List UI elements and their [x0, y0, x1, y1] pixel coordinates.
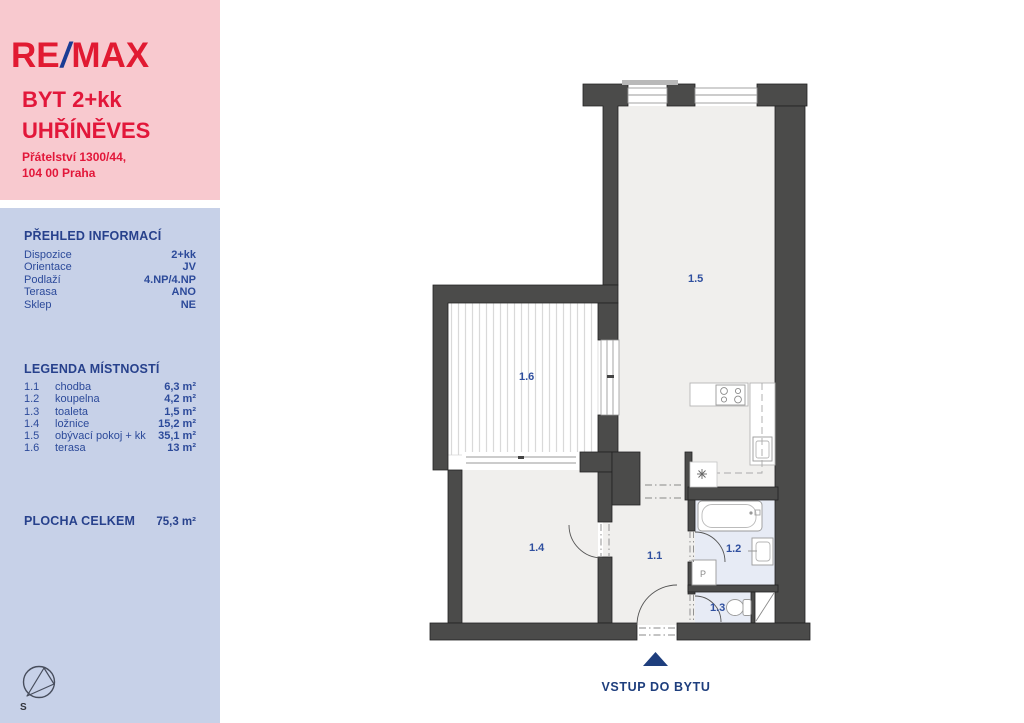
listing-address: Přátelství 1300/44, 104 00 Praha — [22, 149, 126, 181]
listing-title-line2: UHŘÍNĚVES — [22, 115, 150, 146]
info-value: 2+kk — [171, 249, 196, 261]
info-label: Terasa — [24, 286, 57, 298]
room-label-hall: 1.1 — [647, 550, 662, 562]
wall-bedroom-left — [448, 470, 462, 623]
room-name: koupelna — [55, 393, 164, 405]
wall-hall-right-1 — [688, 500, 695, 531]
room-area: 4,2 m² — [164, 393, 196, 405]
wall-terrace-pier — [598, 303, 618, 340]
room-name: ložnice — [55, 418, 158, 430]
wall-right — [775, 106, 805, 623]
info-value: NE — [181, 299, 196, 311]
window-sill-bar — [622, 80, 678, 85]
legend-rows: 1.1chodba6,3 m² 1.2koupelna4,2 m² 1.3toa… — [24, 381, 196, 455]
overview-row: TerasaANO — [24, 286, 196, 298]
total-label: PLOCHA CELKEM — [24, 514, 135, 528]
wall-bedroom-right-lower — [598, 557, 612, 623]
overview-heading: PŘEHLED INFORMACÍ — [24, 229, 161, 243]
wall-bedroom-right-upper — [598, 472, 612, 522]
wall-window-pier — [667, 84, 695, 106]
room-area: 35,1 m² — [158, 430, 196, 442]
overview-row: Dispozice2+kk — [24, 249, 196, 261]
room-name: toaleta — [55, 406, 164, 418]
entrance-label: VSTUP DO BYTU — [602, 680, 711, 694]
overview-row: Podlaží4.NP/4.NP — [24, 274, 196, 286]
wall-below-window — [598, 415, 618, 452]
room-label-living: 1.5 — [688, 273, 703, 285]
room-label-terrace: 1.6 — [519, 371, 534, 383]
window-top-right — [695, 88, 757, 103]
total-value: 75,3 m² — [156, 516, 196, 528]
boiler-nook — [690, 462, 717, 487]
address-line1: Přátelství 1300/44, — [22, 149, 126, 165]
room-area: 13 m² — [167, 442, 196, 454]
window-terrace-living — [601, 340, 619, 415]
legend-heading: LEGENDA MÍSTNOSTÍ — [24, 362, 160, 376]
total-area-row: PLOCHA CELKEM 75,3 m² — [24, 514, 196, 528]
listing-title-line1: BYT 2+kk — [22, 84, 150, 115]
floor-plan: P 1.5 1.6 1.4 1. — [410, 70, 830, 700]
info-label: Podlaží — [24, 274, 61, 286]
room-id: 1.2 — [24, 393, 55, 405]
legend-row: 1.6terasa13 m² — [24, 442, 196, 454]
listing-title: BYT 2+kk UHŘÍNĚVES — [22, 84, 150, 146]
room-area: 1,5 m² — [164, 406, 196, 418]
info-value: JV — [183, 261, 196, 273]
room-label-bathroom: 1.2 — [726, 543, 741, 555]
room-label-toilet: 1.3 — [710, 602, 725, 614]
info-value: ANO — [172, 286, 196, 298]
wall-toilet-shaft-divider — [751, 592, 755, 623]
address-line2: 104 00 Praha — [22, 165, 126, 181]
room-id: 1.3 — [24, 406, 55, 418]
wall-bathroom-top — [688, 487, 778, 500]
toilet — [727, 600, 744, 616]
legend-row: 1.1chodba6,3 m² — [24, 381, 196, 393]
overview-rows: Dispozice2+kk OrientaceJV Podlaží4.NP/4.… — [24, 249, 196, 311]
room-area: 6,3 m² — [164, 381, 196, 393]
room-id: 1.4 — [24, 418, 55, 430]
wall-bottom-left — [430, 623, 637, 640]
room-name: chodba — [55, 381, 164, 393]
legend-row: 1.3toaleta1,5 m² — [24, 406, 196, 418]
window-top-left — [628, 88, 667, 103]
room-name: obývací pokoj + kk — [55, 430, 158, 442]
wall-hall-top — [612, 452, 640, 505]
legend-row: 1.5obývací pokoj + kk35,1 m² — [24, 430, 196, 442]
logo-slash: / — [61, 36, 71, 75]
flyer-page: RE/MAX BYT 2+kk UHŘÍNĚVES Přátelství 130… — [0, 0, 1024, 723]
overview-row: SklepNE — [24, 299, 196, 311]
washing-machine-label: P — [700, 569, 706, 579]
entrance-arrow-icon — [643, 652, 668, 666]
room-area: 15,2 m² — [158, 418, 196, 430]
wall-bottom-right — [677, 623, 810, 640]
wall-terrace-bottom — [580, 452, 612, 472]
boiler-icon — [697, 469, 707, 479]
info-label: Dispozice — [24, 249, 72, 261]
room-name: terasa — [55, 442, 167, 454]
remax-logo: RE/MAX — [11, 36, 149, 76]
logo-max: MAX — [71, 36, 149, 75]
info-value: 4.NP/4.NP — [144, 274, 196, 286]
wall-bath-toilet-divider — [688, 585, 778, 592]
logo-re: RE — [11, 36, 60, 75]
header-panel: RE/MAX BYT 2+kk UHŘÍNĚVES Přátelství 130… — [0, 0, 220, 200]
wall-top-right — [757, 84, 807, 106]
room-id: 1.5 — [24, 430, 55, 442]
room-id: 1.1 — [24, 381, 55, 393]
info-panel: PŘEHLED INFORMACÍ Dispozice2+kk Orientac… — [0, 208, 220, 723]
compass-north-label: S — [20, 702, 27, 713]
window-terrace-bedroom — [462, 452, 580, 470]
info-label: Orientace — [24, 261, 72, 273]
room-label-bedroom: 1.4 — [529, 542, 545, 554]
legend-row: 1.2koupelna4,2 m² — [24, 393, 196, 405]
compass-icon: S — [12, 654, 68, 716]
room-id: 1.6 — [24, 442, 55, 454]
overview-row: OrientaceJV — [24, 261, 196, 273]
info-label: Sklep — [24, 299, 52, 311]
legend-row: 1.4ložnice15,2 m² — [24, 418, 196, 430]
